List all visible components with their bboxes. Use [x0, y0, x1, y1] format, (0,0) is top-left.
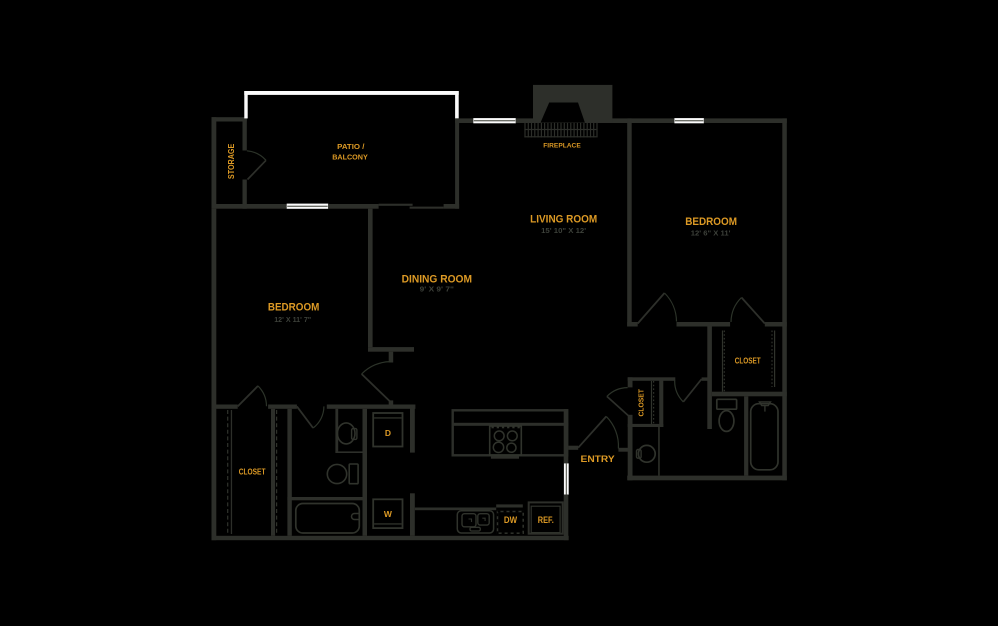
svg-text:BEDROOM: BEDROOM: [685, 216, 737, 228]
svg-text:BALCONY: BALCONY: [332, 153, 368, 162]
svg-text:CLOSET: CLOSET: [239, 468, 266, 477]
svg-text:PATIO /: PATIO /: [337, 142, 365, 151]
svg-text:12' 6" X 11': 12' 6" X 11': [691, 228, 731, 237]
svg-text:REF.: REF.: [538, 515, 554, 525]
svg-text:12' X 11' 7": 12' X 11' 7": [274, 315, 311, 324]
svg-text:LIVING ROOM: LIVING ROOM: [530, 213, 597, 225]
svg-text:9' X 9' 7": 9' X 9' 7": [420, 284, 455, 293]
svg-text:15' 10" X 12': 15' 10" X 12': [541, 226, 586, 235]
svg-text:DW: DW: [504, 515, 518, 525]
svg-text:D: D: [385, 428, 391, 438]
svg-text:BEDROOM: BEDROOM: [268, 302, 320, 314]
svg-text:CLOSET: CLOSET: [735, 357, 761, 366]
svg-text:ENTRY: ENTRY: [581, 454, 615, 464]
svg-text:CLOSET: CLOSET: [636, 389, 645, 417]
svg-text:FIREPLACE: FIREPLACE: [543, 143, 581, 150]
svg-text:W: W: [384, 509, 393, 519]
svg-text:STORAGE: STORAGE: [227, 143, 236, 179]
